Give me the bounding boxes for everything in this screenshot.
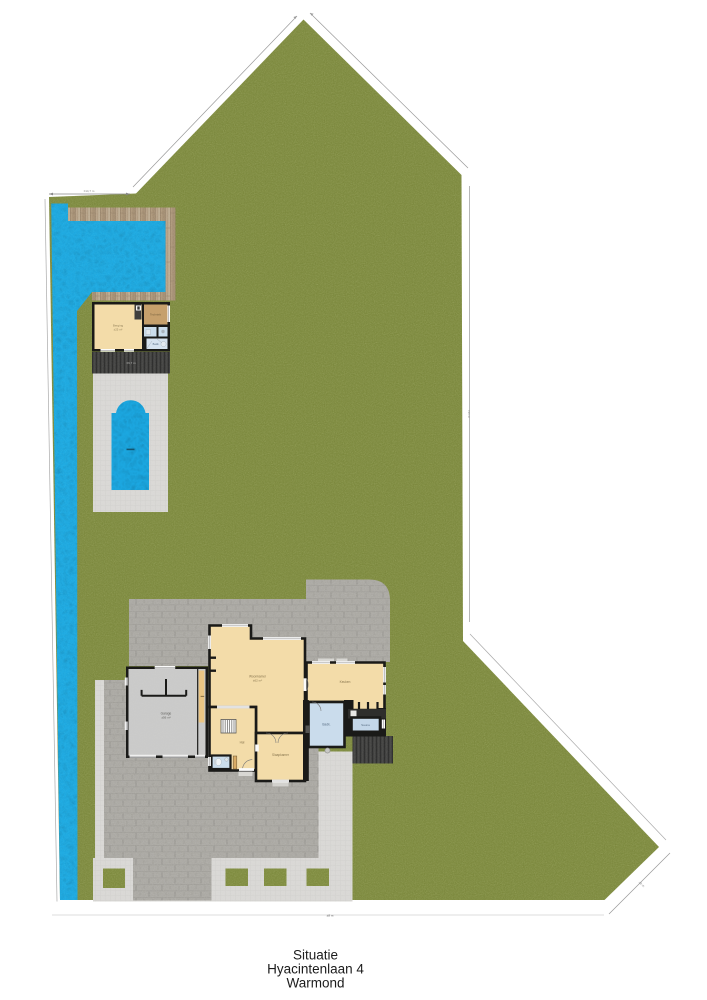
svg-text:Slaapkamer: Slaapkamer [272, 753, 290, 757]
svg-text:Techniek: Techniek [150, 313, 162, 317]
svg-text:Sauna: Sauna [361, 723, 370, 727]
svg-text:±31 m: ±31 m [467, 410, 471, 419]
svg-text:±62 m²: ±62 m² [253, 679, 262, 683]
svg-text:Warmond: Warmond [286, 976, 344, 991]
svg-text:Keuken: Keuken [340, 680, 351, 684]
svg-text:±8 m: ±8 m [327, 914, 334, 918]
svg-text:±14,7 m: ±14,7 m [84, 189, 95, 193]
svg-text:±56 m²: ±56 m² [161, 716, 170, 720]
svg-text:Badk.: Badk. [153, 342, 160, 346]
svg-text:Badk.: Badk. [322, 723, 330, 727]
svg-text:Hal: Hal [240, 741, 245, 745]
svg-text:±25 m²: ±25 m² [114, 328, 123, 332]
svg-text:Hyacintenlaan 4: Hyacintenlaan 4 [267, 962, 364, 977]
svg-text:Situatie: Situatie [293, 948, 338, 963]
svg-text:±9,7 m: ±9,7 m [126, 361, 136, 365]
